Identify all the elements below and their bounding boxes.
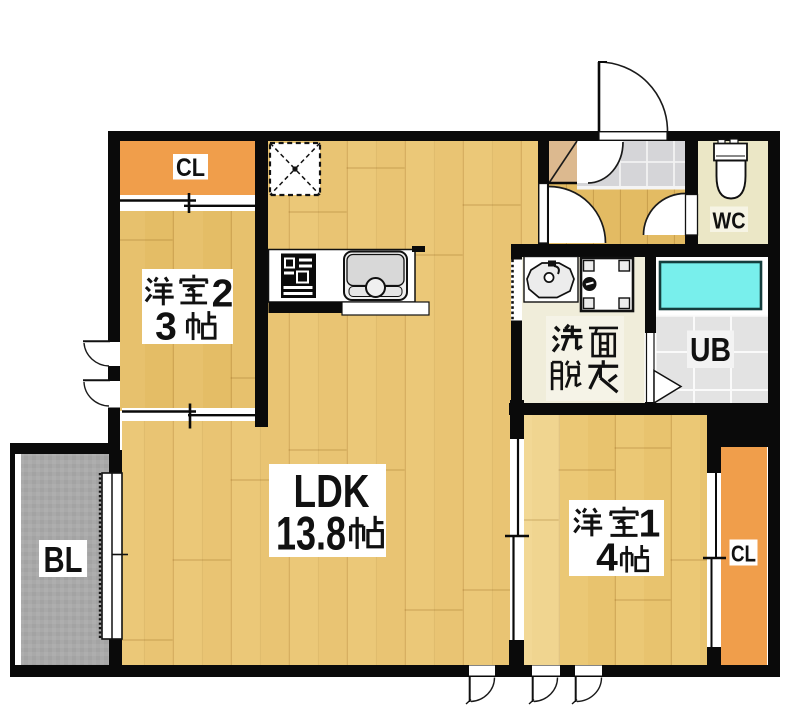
svg-text:WC: WC	[713, 208, 746, 234]
svg-text:UB: UB	[690, 331, 731, 368]
svg-text:CL: CL	[176, 154, 205, 182]
svg-text:BL: BL	[44, 539, 83, 580]
svg-text:1: 1	[639, 503, 661, 546]
svg-text:CL: CL	[731, 541, 756, 567]
svg-text:4: 4	[596, 537, 618, 580]
svg-text:3: 3	[155, 306, 177, 349]
svg-text:13.8: 13.8	[276, 507, 346, 560]
svg-text:2: 2	[212, 273, 234, 316]
